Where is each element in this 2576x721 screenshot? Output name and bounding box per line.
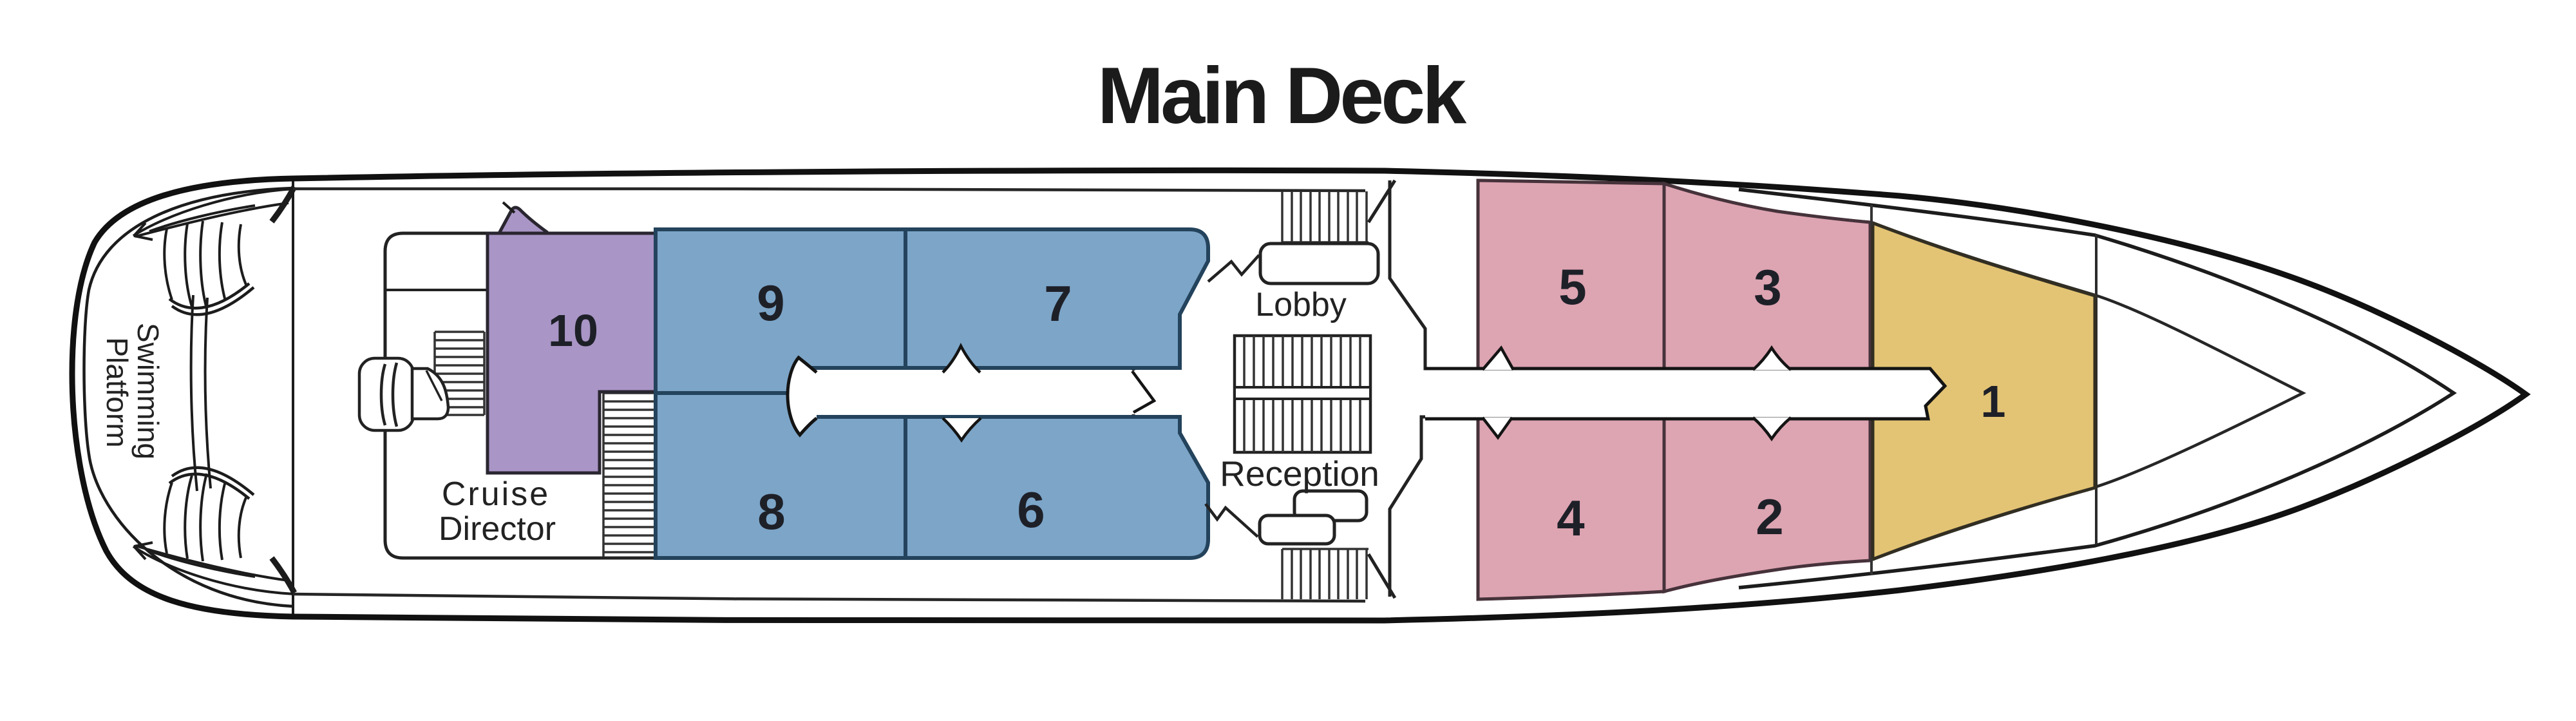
svg-text:10: 10 xyxy=(548,305,598,356)
svg-text:9: 9 xyxy=(757,274,784,331)
svg-text:1: 1 xyxy=(1981,376,2006,427)
svg-text:6: 6 xyxy=(1017,481,1045,538)
svg-text:5: 5 xyxy=(1558,258,1586,315)
svg-text:Platform: Platform xyxy=(100,337,134,447)
svg-text:Reception: Reception xyxy=(1220,454,1379,494)
svg-text:Lobby: Lobby xyxy=(1255,286,1347,323)
svg-text:2: 2 xyxy=(1756,488,1783,545)
svg-text:7: 7 xyxy=(1044,275,1072,332)
svg-text:8: 8 xyxy=(757,483,785,540)
svg-text:Director: Director xyxy=(439,510,556,548)
svg-text:4: 4 xyxy=(1557,490,1584,546)
svg-text:Main Deck: Main Deck xyxy=(1097,52,1467,140)
svg-text:3: 3 xyxy=(1754,259,1781,316)
svg-text:Swimming: Swimming xyxy=(131,323,165,459)
svg-text:Cruise: Cruise xyxy=(442,476,550,513)
